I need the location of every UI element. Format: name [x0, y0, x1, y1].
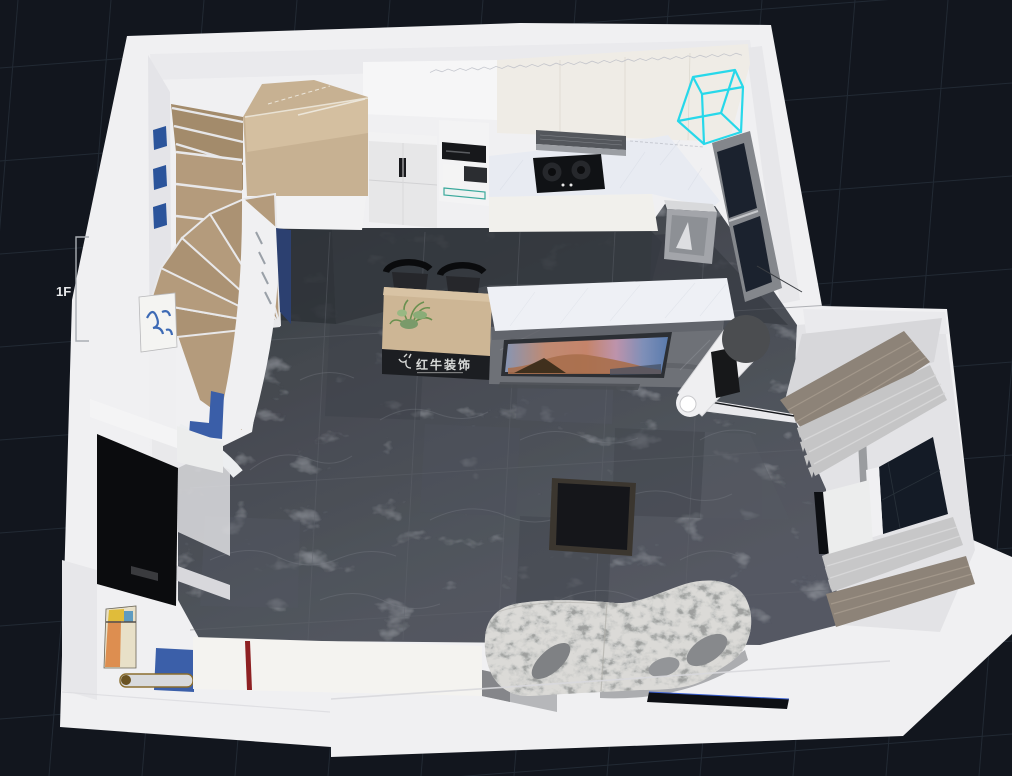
svg-text:红牛装饰: 红牛装饰: [416, 357, 472, 372]
svg-text:1F: 1F: [56, 284, 71, 299]
